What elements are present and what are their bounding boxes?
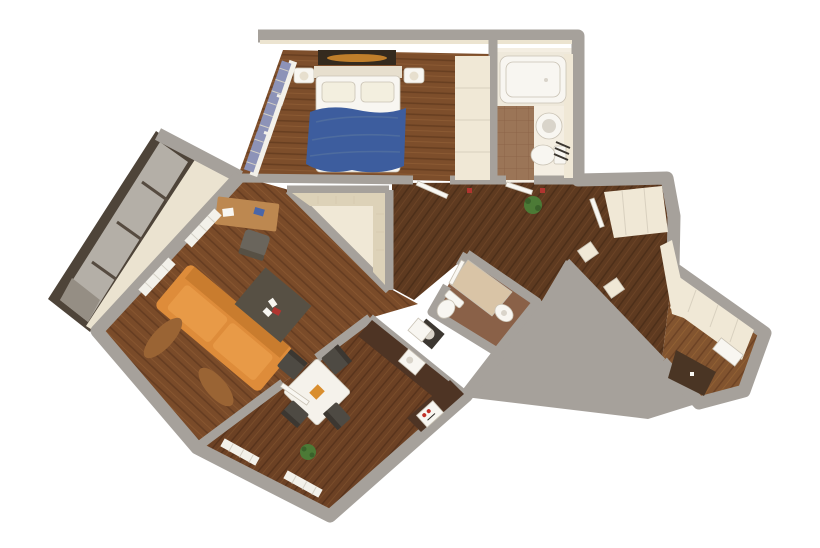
bathtub-drain [544,78,548,82]
toilet [531,145,566,165]
plant-foliage [300,444,316,460]
hall-plant [524,196,542,214]
floor-plan-canvas [0,0,820,548]
plant-leaf [535,205,541,211]
plant-leaf [302,447,307,452]
plant-leaf [525,198,531,204]
wall-switch-red [540,188,545,193]
wall-switch-red [467,188,472,193]
basin-bowl [542,119,556,133]
closet-shelf-side [373,206,385,285]
bath-brown-tile [497,106,534,180]
desk-papers [222,208,234,217]
bedroom [294,50,490,180]
corridor-wardrobe [604,186,668,238]
lamp-right [410,72,419,81]
painting-sunset [327,54,387,62]
toilet-bowl [531,145,555,165]
pillow-left [322,82,355,102]
floor-plan-stage [0,0,820,548]
plant-leaf [310,453,315,458]
dining-plant [300,444,316,460]
mat-item [690,372,694,376]
lamp-left [300,72,309,81]
pillow-right [361,82,394,102]
wardrobe [455,56,490,180]
